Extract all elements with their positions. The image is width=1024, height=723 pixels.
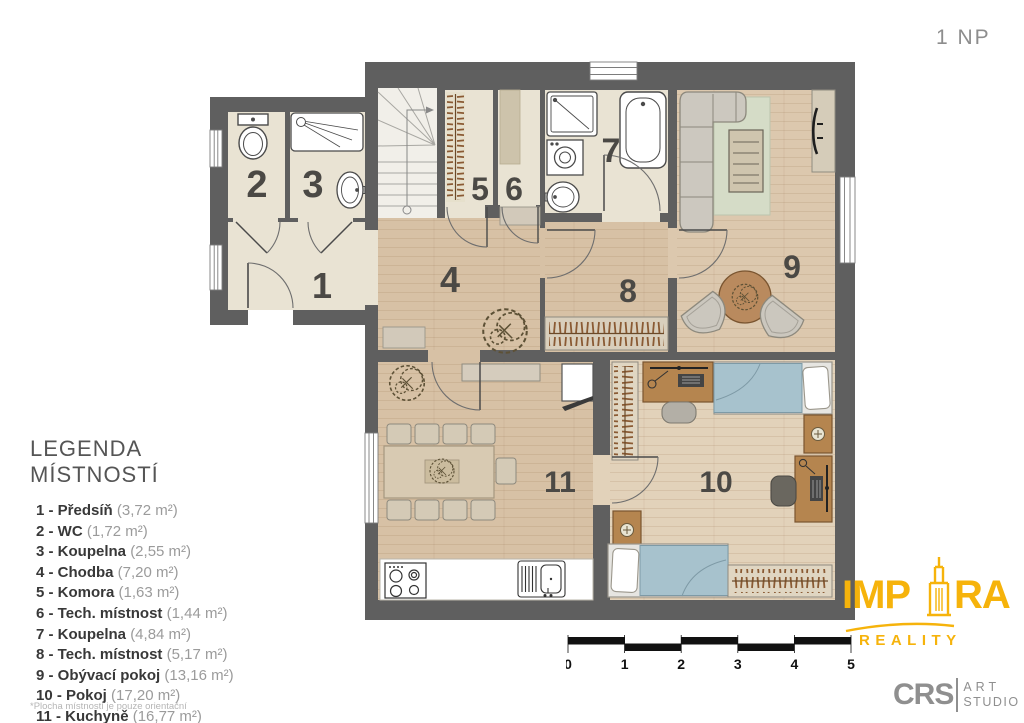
kitchen-counter: [380, 559, 593, 600]
crs-logo: CRS ART STUDIO: [893, 678, 1020, 712]
legend-item: 3 - Koupelna (2,55 m²): [30, 542, 270, 563]
floor-label: 1 NP: [936, 26, 991, 50]
floor-plan: 2 3: [200, 50, 860, 625]
window: [210, 245, 222, 290]
bed-icon: [714, 362, 832, 414]
window: [590, 62, 637, 80]
legend-item: 4 - Chodba (7,20 m²): [30, 563, 270, 584]
desk-chair-icon: [662, 402, 696, 423]
wardrobe-icon: [545, 317, 668, 350]
crs-line2: STUDIO: [963, 695, 1019, 710]
scale-label: 1: [621, 656, 629, 672]
scale-label: 5: [847, 656, 855, 672]
room-number: 5: [471, 171, 489, 207]
impira-subtitle: REALITY: [859, 632, 962, 649]
nightstand-icon: [804, 415, 832, 453]
pillow: [803, 366, 831, 410]
scale-label: 4: [791, 656, 799, 672]
room-number: 9: [783, 249, 801, 285]
kitchen-sink-icon: [518, 561, 565, 597]
washing-machine-icon: [547, 140, 583, 175]
room-number: 7: [602, 132, 621, 170]
sideboard-icon: [462, 364, 540, 381]
legend-footnote: *Plocha místností je pouze orientační: [30, 701, 187, 712]
scale-label: 3: [734, 656, 742, 672]
wardrobe-rail-icon: [446, 92, 465, 202]
legend-item: 8 - Tech. místnost (5,17 m²): [30, 645, 270, 666]
building-icon: [926, 556, 952, 622]
floorplan-page: 1 NP: [0, 0, 1024, 723]
room-number: 10: [699, 466, 732, 499]
bed-icon: [608, 544, 728, 597]
cabinet-icon: [383, 327, 425, 348]
legend-title: LEGENDA MÍSTNOSTÍ: [30, 436, 270, 488]
nightstand-icon: [613, 511, 641, 549]
legend-item: 2 - WC (1,72 m²): [30, 522, 270, 543]
crs-initials: CRS: [893, 680, 953, 710]
legend-item: 1 - Předsíň (3,72 m²): [30, 501, 270, 522]
cabinet-icon: [500, 90, 520, 164]
scale-label: 0: [566, 656, 572, 672]
stove-icon: [385, 563, 426, 598]
room-number: 4: [440, 259, 460, 300]
impira-logo: IMP RA REALITY: [842, 556, 1022, 658]
sideboard-icon: [500, 207, 540, 225]
legend: LEGENDA MÍSTNOSTÍ 1 - Předsíň (3,72 m²) …: [30, 436, 270, 723]
swoosh-line: [844, 617, 956, 633]
scale-bar: 0 1 2 3 4 5: [566, 633, 858, 673]
coffee-table-icon: [729, 130, 763, 192]
room-number: 3: [302, 164, 323, 206]
legend-item: 6 - Tech. místnost (1,44 m²): [30, 604, 270, 625]
crs-divider: [956, 678, 958, 712]
window: [210, 130, 222, 167]
room-number: 1: [312, 265, 332, 306]
window: [365, 433, 378, 523]
tv-console-icon: [812, 90, 835, 172]
legend-item: 5 - Komora (1,63 m²): [30, 583, 270, 604]
impira-text-right: RA: [954, 573, 1010, 618]
toilet-icon: [238, 114, 268, 159]
wardrobe-icon: [612, 362, 638, 460]
room-number: 8: [619, 273, 637, 309]
room-number: 6: [505, 171, 523, 207]
legend-item: 9 - Obývací pokoj (13,16 m²): [30, 666, 270, 687]
shower-icon: [291, 113, 363, 151]
room-number: 11: [544, 466, 576, 499]
scale-label: 2: [677, 656, 685, 672]
crs-line1: ART: [963, 680, 1019, 695]
desk-chair-icon: [771, 476, 796, 506]
impira-text-left: IMP: [842, 573, 910, 618]
wardrobe-icon: [728, 565, 832, 597]
bathtub-icon: [620, 92, 666, 168]
window: [840, 177, 855, 263]
room-number: 2: [246, 164, 267, 206]
shower-icon: [547, 92, 597, 136]
legend-item: 7 - Koupelna (4,84 m²): [30, 625, 270, 646]
pillow: [611, 548, 639, 592]
